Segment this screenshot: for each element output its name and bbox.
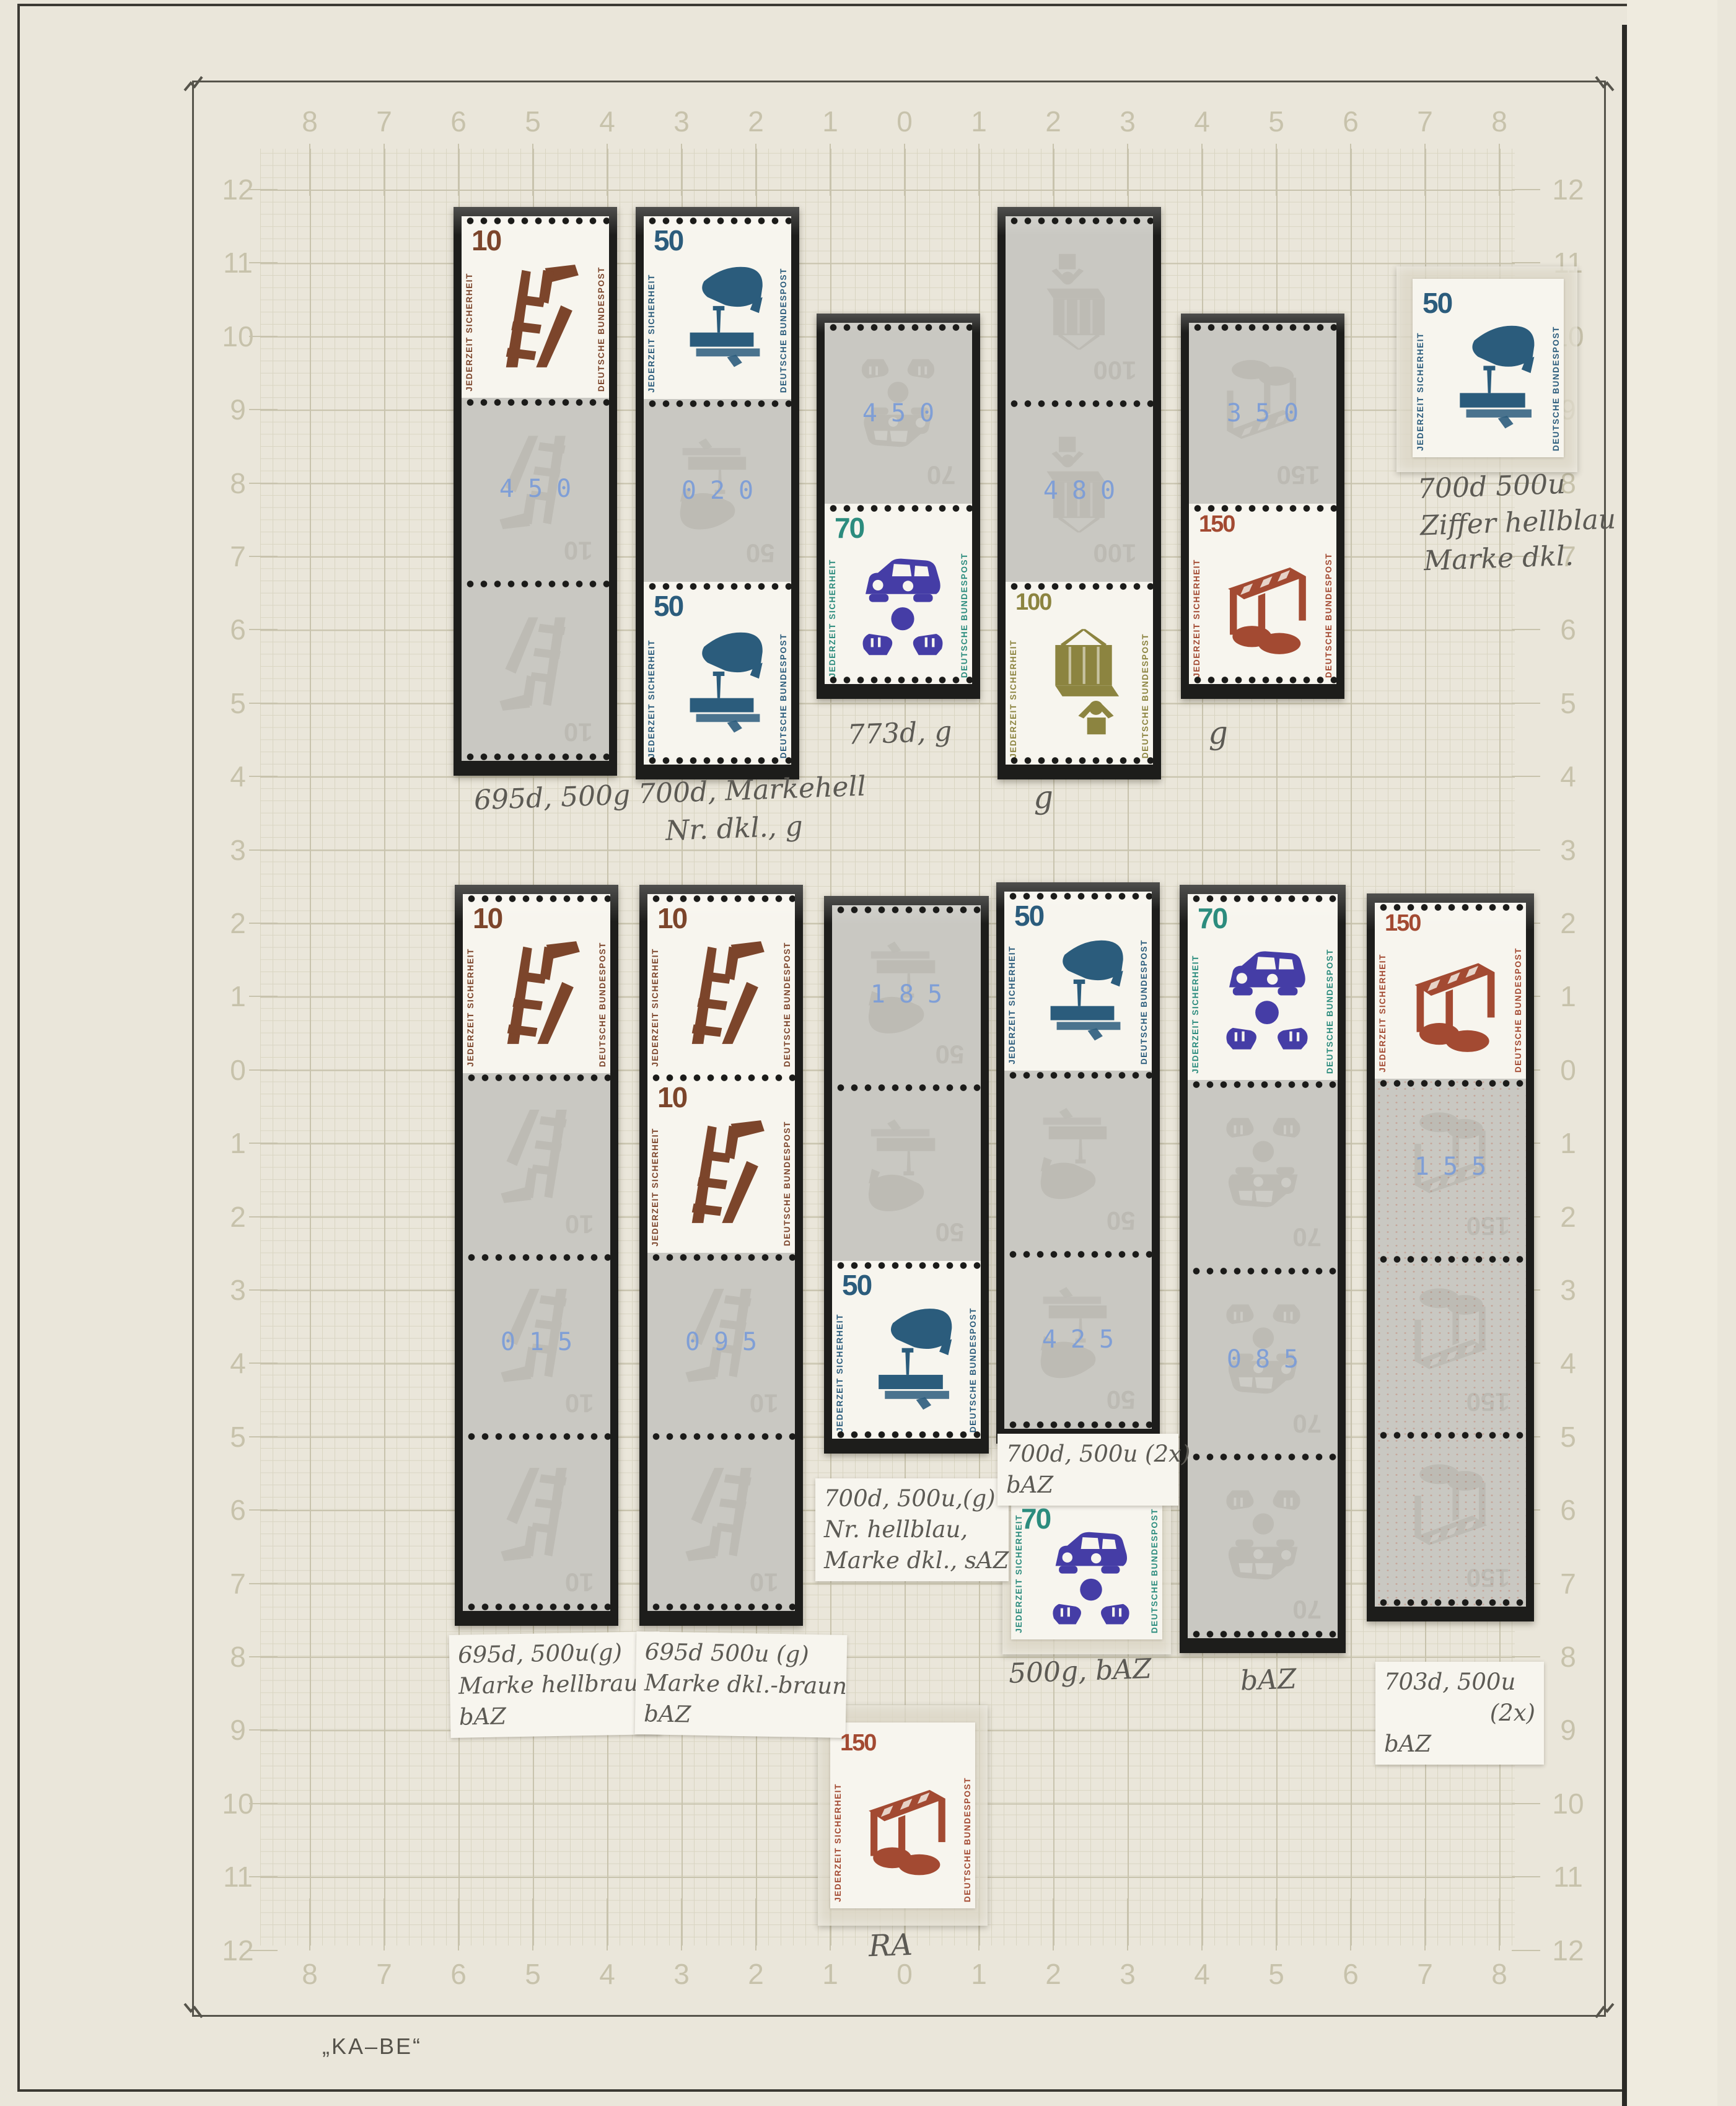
page-edge-line	[1622, 25, 1627, 2106]
ruler-tick	[532, 144, 533, 196]
stamp-left-label: JEDERZEIT SICHERHEIT	[828, 559, 837, 678]
ruler-tick	[1053, 1898, 1054, 1950]
ghost-value: 100	[1094, 355, 1137, 385]
strip-blank-field: 100480	[1006, 399, 1153, 582]
blank-field-paper: 10	[462, 579, 609, 761]
stamp-left-label: JEDERZEIT SICHERHEIT	[1378, 954, 1387, 1073]
strip-blank-field: 70450	[825, 323, 972, 504]
ruler-tick	[249, 409, 278, 410]
ruler-tick	[1512, 1876, 1540, 1877]
ruler-number: 2	[1045, 1957, 1061, 1991]
stamp-50: 50JEDERZEIT SICHERHEITDEUTSCHE BUNDESPOS…	[832, 1261, 981, 1439]
ghost-value: 10	[565, 1388, 594, 1418]
label-line: bAZ	[1006, 1470, 1170, 1501]
blank-field-paper: 10	[647, 1432, 795, 1611]
ruler-tick	[607, 1898, 608, 1950]
nail-in-board-icon	[678, 253, 766, 381]
stamp-value: 10	[471, 224, 501, 257]
stamp-right-label: DEUTSCHE BUNDESPOST	[963, 1777, 972, 1902]
strip-blank-field: 50425	[1004, 1250, 1152, 1429]
ruler-number: 1	[822, 105, 838, 138]
blank-field-paper: 70	[1188, 1452, 1338, 1638]
strip-stamp-field: 100JEDERZEIT SICHERHEITDEUTSCHE BUNDESPO…	[1006, 582, 1153, 765]
stamp-150: 150JEDERZEIT SICHERHEITDEUTSCHE BUNDESPO…	[830, 1722, 975, 1908]
nail-in-board-icon	[678, 618, 766, 747]
ruler-tick	[830, 144, 831, 196]
ruler-number: 4	[599, 105, 615, 138]
ghost-impression: 50	[841, 1092, 971, 1252]
strip-blank-field: 10	[463, 1432, 610, 1611]
ruler-tick	[1350, 1898, 1351, 1950]
ghost-impression: 70	[1197, 1462, 1329, 1629]
traffic-accident-icon	[859, 540, 947, 666]
label-line: (2x)	[1384, 1698, 1535, 1729]
ruler-tick	[1512, 189, 1540, 190]
coil-counting-number: 350	[1213, 399, 1312, 428]
note-baz-1: bAZ	[1240, 1663, 1297, 1696]
ruler-number: 6	[450, 1957, 467, 1991]
ruler-number: 3	[1560, 833, 1576, 867]
stamp-50: 50JEDERZEIT SICHERHEITDEUTSCHE BUNDESPOS…	[644, 216, 791, 399]
label-700d-saz: 700d, 500u,(g) Nr. hellblau, Marke dkl.,…	[815, 1478, 1009, 1581]
coil-strip-50-425: 50JEDERZEIT SICHERHEITDEUTSCHE BUNDESPOS…	[996, 882, 1160, 1444]
blank-field-paper: 10	[463, 1432, 610, 1611]
ruler-tick	[249, 996, 278, 997]
note-773d-g: 773d, g	[847, 716, 952, 751]
broken-ladder-icon	[682, 930, 770, 1055]
stamp-10: 10JEDERZEIT SICHERHEITDEUTSCHE BUNDESPOS…	[647, 1073, 795, 1252]
label-695d-dklbraun: 695d 500u (g) Marke dkl.-braun bAZ	[635, 1631, 848, 1738]
label-703d: 703d, 500u (2x) bAZ	[1375, 1662, 1544, 1765]
stamp-left-label: JEDERZEIT SICHERHEIT	[1014, 1514, 1024, 1633]
strip-blank-field: 70085	[1188, 1266, 1338, 1452]
strip-blank-field: 10095	[647, 1253, 795, 1432]
coil-strip-70-085: 70JEDERZEIT SICHERHEITDEUTSCHE BUNDESPOS…	[1180, 885, 1346, 1653]
ruler-number: 7	[1417, 105, 1433, 138]
ruler-tick	[1276, 144, 1277, 196]
note-marke-dkl: Marke dkl.	[1423, 540, 1574, 577]
ruler-number: 1	[971, 105, 987, 138]
ghost-value: 70	[1292, 1222, 1322, 1252]
broken-ladder-icon	[497, 930, 585, 1055]
label-line: Marke hellbraun	[458, 1667, 652, 1701]
stamp-right-label: DEUTSCHE BUNDESPOST	[1551, 326, 1561, 451]
ruler-tick	[384, 144, 385, 196]
strip-stamp-field: 10JEDERZEIT SICHERHEITDEUTSCHE BUNDESPOS…	[463, 894, 610, 1073]
strip-stamp-field: 10JEDERZEIT SICHERHEITDEUTSCHE BUNDESPOS…	[647, 1073, 795, 1252]
ruler-number: 2	[1045, 105, 1061, 138]
broken-ladder-icon	[681, 1457, 761, 1573]
nail-in-board-icon	[1038, 1095, 1118, 1211]
label-line: 700d, 500u (2x)	[1006, 1439, 1170, 1470]
ruler-number: 6	[1560, 613, 1576, 646]
ruler-number: 6	[450, 105, 467, 138]
label-line: Marke dkl., sAZ	[824, 1545, 1000, 1576]
note-g-2: g	[1208, 714, 1229, 751]
blank-field-paper: 50425	[1004, 1250, 1152, 1429]
nail-in-board-icon	[1038, 928, 1127, 1053]
ruler-tick	[249, 849, 278, 851]
stamp-right-label: DEUTSCHE BUNDESPOST	[779, 633, 788, 758]
ruler-tick	[1512, 776, 1540, 777]
strip-stamp-field: 150JEDERZEIT SICHERHEITDEUTSCHE BUNDESPO…	[1375, 903, 1526, 1079]
ruler-number: 0	[896, 105, 913, 138]
ruler-number: 5	[1560, 1420, 1576, 1454]
strip-inner: 150350150JEDERZEIT SICHERHEITDEUTSCHE BU…	[1189, 323, 1336, 684]
stamp-150: 150JEDERZEIT SICHERHEITDEUTSCHE BUNDESPO…	[1375, 903, 1526, 1079]
coil-strip-10-095: 10JEDERZEIT SICHERHEITDEUTSCHE BUNDESPOS…	[639, 885, 803, 1626]
stamp-left-label: JEDERZEIT SICHERHEIT	[833, 1783, 843, 1902]
stamp-right-label: DEUTSCHE BUNDESPOST	[1325, 949, 1335, 1074]
broken-ladder-icon	[495, 605, 576, 722]
ruler-tick	[249, 189, 278, 190]
stamp-left-label: JEDERZEIT SICHERHEIT	[835, 1314, 844, 1433]
strip-stamp-field: 70JEDERZEIT SICHERHEITDEUTSCHE BUNDESPOS…	[1188, 894, 1338, 1080]
construction-barrier-icon	[1223, 540, 1312, 666]
strip-blank-field: 150155	[1375, 1079, 1526, 1255]
ruler-tick	[249, 556, 278, 557]
ghost-value: 10	[564, 717, 593, 747]
ruler-number: 1	[230, 980, 246, 1013]
ruler-number: 1	[822, 1957, 838, 1991]
note-g-1: g	[1033, 779, 1054, 815]
ruler-tick	[249, 262, 278, 263]
note-700d-500u: 700d 500u	[1417, 468, 1566, 505]
stamp-left-label: JEDERZEIT SICHERHEIT	[1192, 559, 1201, 678]
strip-stamp-field: 70JEDERZEIT SICHERHEITDEUTSCHE BUNDESPOS…	[825, 504, 972, 685]
ruler-tick	[249, 776, 278, 777]
strip-blank-field: 150350	[1189, 323, 1336, 504]
strip-inner: 70JEDERZEIT SICHERHEITDEUTSCHE BUNDESPOS…	[1188, 894, 1338, 1638]
ruler-tick	[249, 483, 278, 484]
ruler-number: 12	[1552, 173, 1584, 206]
ruler-tick	[1512, 1803, 1540, 1804]
ruler-number: 2	[748, 105, 764, 138]
broken-ladder-icon	[496, 1099, 577, 1214]
ruler-number: 5	[525, 1957, 541, 1991]
ghost-value: 50	[1107, 1385, 1136, 1415]
ruler-tick	[1424, 144, 1426, 196]
ruler-number: 3	[673, 1957, 690, 1991]
traffic-accident-icon	[1046, 1524, 1136, 1625]
ruler-number: 8	[302, 105, 318, 138]
stamp-right-label: DEUTSCHE BUNDESPOST	[779, 268, 788, 393]
coil-strip-10-450: 10JEDERZEIT SICHERHEITDEUTSCHE BUNDESPOS…	[454, 207, 617, 776]
stamp-right-label: DEUTSCHE BUNDESPOST	[960, 553, 969, 678]
ruler-number: 5	[525, 105, 541, 138]
ruler-tick	[249, 1069, 278, 1071]
strip-stamp-field: 10JEDERZEIT SICHERHEITDEUTSCHE BUNDESPOS…	[647, 894, 795, 1073]
ghost-value: 10	[750, 1388, 779, 1418]
ghost-impression: 10	[471, 1441, 601, 1602]
coil-counting-number: 015	[487, 1328, 586, 1356]
ruler-tick	[904, 144, 905, 196]
ruler-tick	[249, 1803, 278, 1804]
coil-counting-number: 480	[1030, 476, 1129, 505]
ruler-number: 7	[230, 540, 246, 573]
ruler-number: 10	[1552, 1787, 1584, 1820]
ghost-value: 10	[565, 1568, 594, 1597]
ruler-number: 1	[971, 1957, 987, 1991]
coil-strip-70-450: 7045070JEDERZEIT SICHERHEITDEUTSCHE BUND…	[817, 314, 980, 699]
blank-field-paper: 10450	[462, 398, 609, 579]
frame-corner-ornament	[1594, 72, 1615, 93]
stamp-value: 150	[1385, 910, 1420, 937]
ruler-number: 8	[1560, 1640, 1576, 1674]
single-stamp-150-ra: 150JEDERZEIT SICHERHEITDEUTSCHE BUNDESPO…	[818, 1705, 988, 1926]
ghost-value: 10	[565, 1209, 594, 1239]
blank-field-paper: 150155	[1375, 1079, 1526, 1255]
ruler-number: 2	[1560, 906, 1576, 940]
ruler-number: 9	[230, 393, 246, 426]
frame-corner-ornament	[1594, 2001, 1615, 2022]
ruler-tick	[755, 1898, 756, 1950]
frame-corner-ornament	[183, 2001, 204, 2022]
ruler-number: 11	[1553, 1860, 1583, 1893]
ruler-number: 8	[302, 1957, 318, 1991]
ghost-value: 150	[1466, 1387, 1509, 1417]
broken-ladder-icon	[682, 1109, 770, 1234]
broken-ladder-icon	[496, 1457, 577, 1573]
ruler-tick	[1512, 1656, 1540, 1657]
stamp-10: 10JEDERZEIT SICHERHEITDEUTSCHE BUNDESPOS…	[463, 894, 610, 1073]
ruler-tick	[249, 1729, 278, 1731]
ruler-tick	[1201, 144, 1203, 196]
stamp-right-label: DEUTSCHE BUNDESPOST	[783, 1121, 792, 1246]
ruler-tick	[1499, 1898, 1500, 1950]
nail-in-board-icon	[866, 1296, 955, 1421]
coil-counting-number: 085	[1213, 1345, 1312, 1374]
coil-strip-150-350: 150350150JEDERZEIT SICHERHEITDEUTSCHE BU…	[1181, 314, 1344, 699]
ruler-tick	[309, 144, 310, 196]
label-700d-2x: 700d, 500u (2x) bAZ	[997, 1434, 1178, 1506]
stamp-150: 150JEDERZEIT SICHERHEITDEUTSCHE BUNDESPO…	[1189, 504, 1336, 685]
ghost-impression: 70	[1197, 1089, 1329, 1257]
stamp-left-label: JEDERZEIT SICHERHEIT	[1191, 955, 1200, 1074]
stamp-left-label: JEDERZEIT SICHERHEIT	[647, 639, 656, 758]
stamp-100: 100JEDERZEIT SICHERHEITDEUTSCHE BUNDESPO…	[1006, 582, 1153, 765]
blank-field-paper: 10015	[463, 1253, 610, 1432]
ruler-tick	[755, 144, 756, 196]
ruler-number: 4	[599, 1957, 615, 1991]
blank-field-paper: 150	[1375, 1255, 1526, 1431]
ruler-number: 5	[1560, 687, 1576, 720]
coil-strip-100-480: 100 100480100JEDERZEIT SICHERHEITDEUTSCH…	[997, 207, 1161, 779]
strip-inner: 50185 5050JEDERZEIT SICHERHEITDEUTSCHE B…	[832, 905, 981, 1439]
ruler-number: 4	[1194, 1957, 1210, 1991]
ruler-number: 4	[230, 760, 246, 793]
ruler-number: 2	[230, 1200, 246, 1234]
ruler-number: 8	[230, 1640, 246, 1674]
coil-counting-number: 155	[1401, 1152, 1500, 1181]
strip-inner: 50JEDERZEIT SICHERHEITDEUTSCHE BUNDESPOS…	[1004, 892, 1152, 1429]
hanging-load-icon	[1039, 242, 1120, 360]
ruler-number: 8	[1491, 105, 1507, 138]
ruler-tick	[249, 1509, 278, 1511]
ruler-number: 7	[230, 1567, 246, 1600]
ruler-tick	[458, 1898, 459, 1950]
ruler-tick	[1512, 262, 1540, 263]
stamp-left-label: JEDERZEIT SICHERHEIT	[651, 948, 660, 1067]
strip-blank-field: 10	[462, 579, 609, 761]
ruler-tick	[1053, 144, 1054, 196]
stamp-50: 50JEDERZEIT SICHERHEITDEUTSCHE BUNDESPOS…	[1004, 892, 1152, 1071]
ruler-tick	[249, 1143, 278, 1144]
coil-counting-number: 020	[668, 476, 767, 505]
blank-field-paper: 10	[463, 1073, 610, 1252]
nail-in-board-icon	[866, 1108, 947, 1223]
coil-counting-number: 450	[849, 399, 948, 428]
ruler-tick	[249, 1216, 278, 1218]
ruler-number: 2	[1560, 1200, 1576, 1234]
blank-field-paper: 50	[1004, 1071, 1152, 1250]
stamp-value: 10	[657, 902, 686, 935]
blank-field-paper: 150	[1375, 1431, 1526, 1607]
stamp-10: 10JEDERZEIT SICHERHEITDEUTSCHE BUNDESPOS…	[647, 894, 795, 1073]
ruler-number: 6	[230, 1493, 246, 1527]
page-right-margin	[1627, 0, 1717, 2106]
label-line: bAZ	[1384, 1729, 1535, 1760]
ruler-tick	[1499, 144, 1500, 196]
stamp-70: 70JEDERZEIT SICHERHEITDEUTSCHE BUNDESPOS…	[1011, 1494, 1162, 1639]
strip-blank-field: 50	[1004, 1071, 1152, 1250]
stamp-value: 50	[654, 224, 683, 257]
construction-barrier-icon	[1409, 938, 1500, 1061]
stamp-left-label: JEDERZEIT SICHERHEIT	[1416, 332, 1425, 451]
ruler-tick	[978, 144, 980, 196]
ruler-number: 4	[230, 1346, 246, 1380]
strip-inner: 7045070JEDERZEIT SICHERHEITDEUTSCHE BUND…	[825, 323, 972, 684]
ruler-tick	[249, 1876, 278, 1877]
ruler-number: 1	[230, 1126, 246, 1160]
ruler-number: 7	[1417, 1957, 1433, 1991]
ruler-number: 4	[1560, 760, 1576, 793]
label-line: 695d 500u (g)	[644, 1636, 838, 1670]
ruler-number: 4	[1560, 1346, 1576, 1380]
ghost-value: 50	[1107, 1206, 1136, 1236]
ghost-value: 70	[1292, 1408, 1322, 1438]
stamp-right-label: DEUTSCHE BUNDESPOST	[1150, 1508, 1159, 1633]
stamp-left-label: JEDERZEIT SICHERHEIT	[647, 274, 656, 393]
blank-field-paper: 50	[832, 1083, 981, 1261]
ruler-number: 8	[230, 467, 246, 500]
note-500g-baz: 500g, bAZ	[1008, 1653, 1152, 1690]
note-ra: RA	[868, 1928, 913, 1963]
strip-stamp-field: 50JEDERZEIT SICHERHEITDEUTSCHE BUNDESPOS…	[1004, 892, 1152, 1071]
ghost-value: 10	[564, 535, 593, 565]
strip-blank-field: 100	[1006, 216, 1153, 399]
ruler-number: 3	[1560, 1273, 1576, 1307]
label-line: bAZ	[644, 1698, 838, 1732]
broken-ladder-icon	[496, 253, 584, 380]
strip-blank-field: 10	[463, 1073, 610, 1252]
ruler-tick	[681, 1898, 682, 1950]
stamp-value: 50	[842, 1268, 871, 1302]
ruler-number: 5	[1268, 105, 1284, 138]
strip-inner: 10JEDERZEIT SICHERHEITDEUTSCHE BUNDESPOS…	[462, 216, 609, 761]
album-page: 8765432101234567887654321012345678121110…	[0, 0, 1736, 2106]
coil-strip-50-020: 50JEDERZEIT SICHERHEITDEUTSCHE BUNDESPOS…	[636, 207, 799, 779]
stamp-value: 50	[1014, 899, 1043, 932]
stamp-50: 50JEDERZEIT SICHERHEITDEUTSCHE BUNDESPOS…	[1413, 279, 1564, 457]
ghost-impression: 150	[1384, 1439, 1517, 1598]
strip-stamp-field: 150JEDERZEIT SICHERHEITDEUTSCHE BUNDESPO…	[1189, 504, 1336, 685]
ghost-value: 50	[746, 538, 775, 568]
ghost-value: 150	[1277, 460, 1320, 489]
stamp-left-label: JEDERZEIT SICHERHEIT	[1009, 639, 1018, 758]
stamp-right-label: DEUTSCHE BUNDESPOST	[783, 942, 792, 1067]
ruler-tick	[1127, 144, 1128, 196]
ghost-value: 50	[936, 1218, 965, 1247]
ruler-tick	[1201, 1898, 1203, 1950]
ruler-number: 9	[230, 1713, 246, 1747]
ruler-tick	[384, 1898, 385, 1950]
ghost-value: 150	[1466, 1211, 1509, 1241]
stamp-right-label: DEUTSCHE BUNDESPOST	[1324, 553, 1333, 678]
ruler-tick	[607, 144, 608, 196]
label-line: Nr. hellblau,	[824, 1514, 1000, 1545]
ruler-tick	[249, 1656, 278, 1657]
ruler-number: 3	[230, 1273, 246, 1307]
ruler-number: 12	[1552, 1934, 1584, 1967]
stamp-value: 150	[840, 1730, 875, 1757]
ruler-tick	[681, 144, 682, 196]
ruler-tick	[1127, 1898, 1128, 1950]
stamp-value: 50	[1423, 286, 1452, 320]
stamp-left-label: JEDERZEIT SICHERHEIT	[466, 948, 475, 1067]
ghost-value: 70	[927, 460, 956, 489]
note-695d-500g: 695d, 500g	[473, 779, 631, 817]
strip-stamp-field: 10JEDERZEIT SICHERHEITDEUTSCHE BUNDESPOS…	[462, 216, 609, 398]
blank-field-paper: 50185	[832, 905, 981, 1083]
ghost-value: 150	[1466, 1563, 1509, 1593]
coil-counting-number: 095	[672, 1328, 771, 1356]
ruler-tick	[249, 629, 278, 630]
coil-counting-number: 450	[486, 475, 585, 503]
stamp-right-label: DEUTSCHE BUNDESPOST	[597, 266, 606, 392]
stamp-right-label: DEUTSCHE BUNDESPOST	[1514, 947, 1523, 1073]
stamp-value: 70	[835, 511, 864, 545]
album-brand-mark: „KA–BE“	[322, 2034, 422, 2060]
ruler-number: 6	[1560, 1493, 1576, 1527]
strip-blank-field: 10	[647, 1432, 795, 1611]
ruler-number: 3	[1120, 105, 1136, 138]
construction-barrier-icon	[864, 1760, 950, 1890]
ruler-tick	[1512, 629, 1540, 630]
construction-barrier-icon	[1409, 1279, 1491, 1393]
ruler-number: 5	[230, 687, 246, 720]
ruler-tick	[249, 336, 278, 337]
ruler-number: 7	[376, 105, 392, 138]
ghost-impression: 10	[470, 589, 600, 752]
stamp-value: 50	[654, 589, 683, 623]
ruler-number: 7	[1560, 1567, 1576, 1600]
ghost-value: 10	[750, 1568, 779, 1597]
ruler-tick	[458, 144, 459, 196]
ruler-number: 5	[230, 1420, 246, 1454]
strip-inner: 100 100480100JEDERZEIT SICHERHEITDEUTSCH…	[1006, 216, 1153, 765]
construction-barrier-icon	[1409, 1455, 1491, 1569]
blank-field-paper: 150350	[1189, 323, 1336, 504]
ruler-tick	[1512, 849, 1540, 851]
strip-blank-field: 50020	[644, 399, 791, 582]
ruler-number: 8	[1491, 1957, 1507, 1991]
ruler-number: 1	[1560, 1126, 1576, 1160]
ruler-tick	[532, 1898, 533, 1950]
strip-stamp-field: 50JEDERZEIT SICHERHEITDEUTSCHE BUNDESPOS…	[644, 582, 791, 765]
ruler-number: 3	[230, 833, 246, 867]
label-line: 695d, 500u(g)	[458, 1636, 652, 1670]
